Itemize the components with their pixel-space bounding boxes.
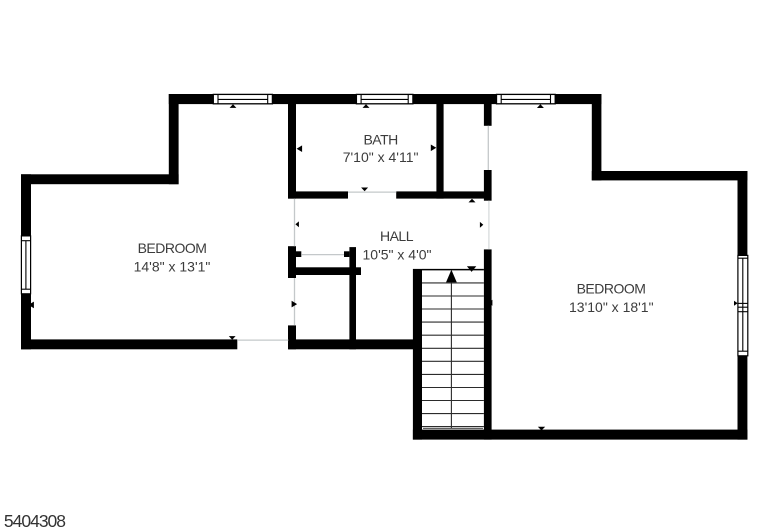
svg-text:HALL: HALL xyxy=(380,228,414,244)
svg-text:BEDROOM: BEDROOM xyxy=(138,240,207,256)
svg-text:5404308: 5404308 xyxy=(4,511,65,531)
svg-text:13'10" x 18'1": 13'10" x 18'1" xyxy=(569,299,654,315)
svg-text:10'5" x 4'0": 10'5" x 4'0" xyxy=(363,247,432,263)
svg-text:14'8" x 13'1": 14'8" x 13'1" xyxy=(134,259,211,275)
svg-text:BATH: BATH xyxy=(363,132,397,148)
svg-text:BEDROOM: BEDROOM xyxy=(577,280,646,296)
svg-text:7'10" x 4'11": 7'10" x 4'11" xyxy=(343,149,419,165)
